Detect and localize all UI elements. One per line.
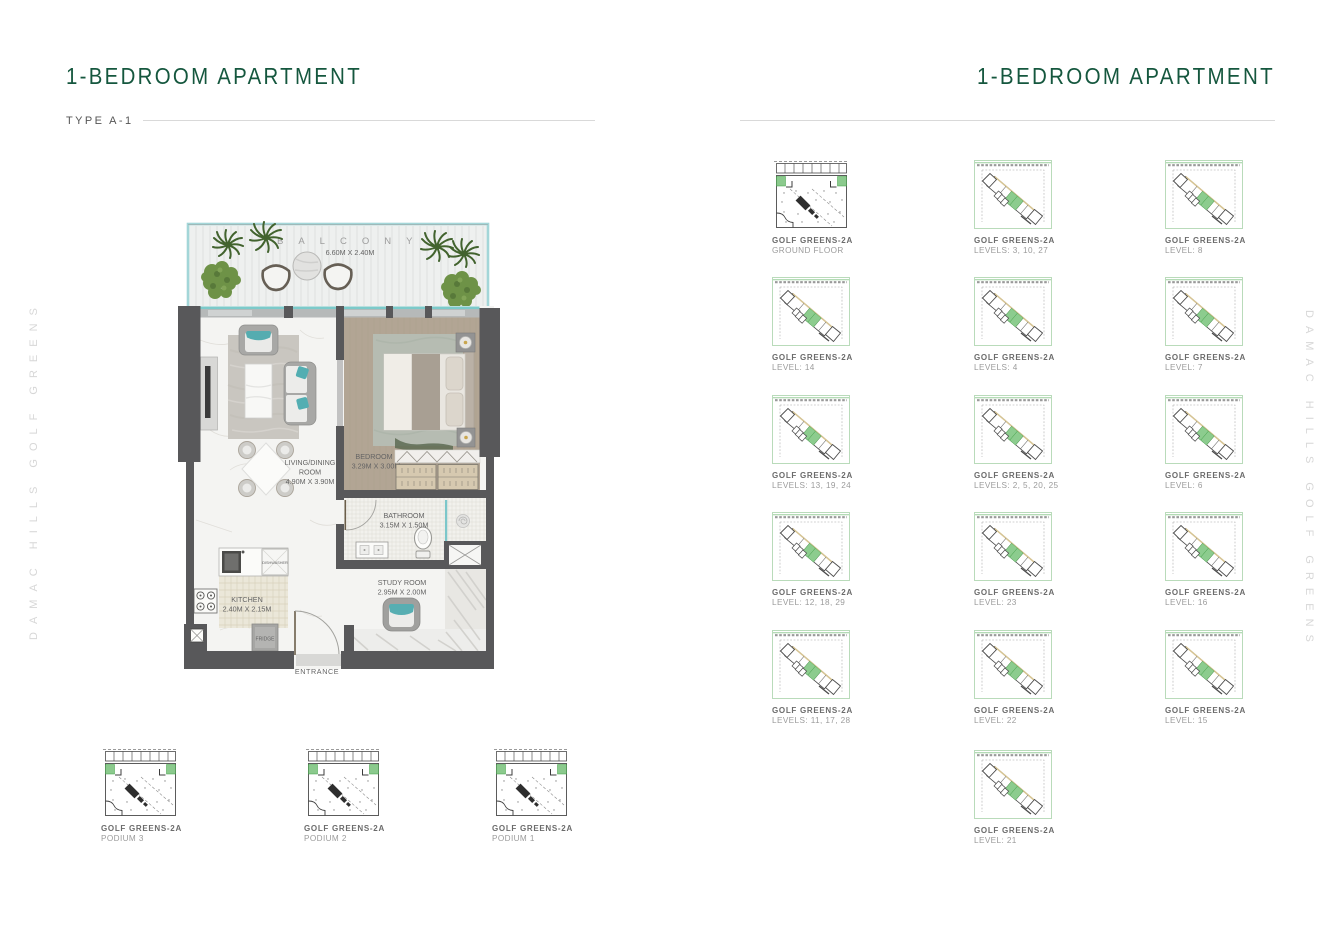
- svg-text:4.90M X 3.90M: 4.90M X 3.90M: [286, 477, 335, 486]
- svg-text:ENTRANCE: ENTRANCE: [295, 667, 339, 676]
- svg-text:GOLF GREENS-2A: GOLF GREENS-2A: [772, 471, 853, 480]
- svg-text:TYPE A-1: TYPE A-1: [66, 115, 134, 127]
- svg-text:GOLF GREENS-2A: GOLF GREENS-2A: [492, 824, 573, 833]
- svg-text:GOLF GREENS-2A: GOLF GREENS-2A: [772, 706, 853, 715]
- svg-text:GOLF GREENS-2A: GOLF GREENS-2A: [974, 236, 1055, 245]
- svg-text:GOLF GREENS-2A: GOLF GREENS-2A: [974, 588, 1055, 597]
- svg-text:PODIUM 3: PODIUM 3: [101, 834, 144, 843]
- svg-text:GOLF GREENS-2A: GOLF GREENS-2A: [974, 706, 1055, 715]
- svg-text:KITCHEN: KITCHEN: [231, 595, 263, 604]
- svg-text:DAMAC HILLS GOLF GREENS: DAMAC HILLS GOLF GREENS: [28, 300, 40, 640]
- svg-text:GOLF GREENS-2A: GOLF GREENS-2A: [974, 826, 1055, 835]
- svg-text:LEVEL: 8: LEVEL: 8: [1165, 246, 1203, 255]
- svg-text:GOLF GREENS-2A: GOLF GREENS-2A: [772, 236, 853, 245]
- svg-text:PODIUM 1: PODIUM 1: [492, 834, 535, 843]
- svg-text:1-BEDROOM APARTMENT: 1-BEDROOM APARTMENT: [66, 63, 362, 89]
- svg-text:ROOM: ROOM: [299, 468, 321, 477]
- svg-text:BEDROOM: BEDROOM: [355, 452, 392, 461]
- svg-text:LEVEL: 12, 18, 29: LEVEL: 12, 18, 29: [772, 598, 845, 607]
- svg-text:2.40M X 2.15M: 2.40M X 2.15M: [223, 605, 272, 614]
- svg-text:STUDY ROOM: STUDY ROOM: [378, 578, 427, 587]
- svg-text:GOLF GREENS-2A: GOLF GREENS-2A: [1165, 236, 1246, 245]
- svg-text:2.95M X 2.00M: 2.95M X 2.00M: [378, 588, 427, 597]
- svg-text:LEVEL: 15: LEVEL: 15: [1165, 716, 1208, 725]
- svg-text:PODIUM 2: PODIUM 2: [304, 834, 347, 843]
- svg-text:LEVEL: 21: LEVEL: 21: [974, 836, 1017, 845]
- svg-text:GOLF GREENS-2A: GOLF GREENS-2A: [772, 588, 853, 597]
- svg-text:GOLF GREENS-2A: GOLF GREENS-2A: [974, 353, 1055, 362]
- svg-text:FRIDGE: FRIDGE: [256, 637, 276, 643]
- svg-text:LEVELS: 3, 10, 27: LEVELS: 3, 10, 27: [974, 246, 1048, 255]
- svg-text:LEVEL: 14: LEVEL: 14: [772, 363, 815, 372]
- svg-text:LEVELS: 11, 17, 28: LEVELS: 11, 17, 28: [772, 716, 851, 725]
- svg-text:LEVELS: 4: LEVELS: 4: [974, 363, 1018, 372]
- svg-text:GOLF GREENS-2A: GOLF GREENS-2A: [304, 824, 385, 833]
- svg-text:3.29M X 3.00M: 3.29M X 3.00M: [352, 462, 401, 471]
- svg-text:LEVELS: 13, 19, 24: LEVELS: 13, 19, 24: [772, 481, 851, 490]
- svg-text:LEVEL: 23: LEVEL: 23: [974, 598, 1017, 607]
- svg-text:GOLF GREENS-2A: GOLF GREENS-2A: [1165, 353, 1246, 362]
- svg-text:LEVELS: 2, 5, 20, 25: LEVELS: 2, 5, 20, 25: [974, 481, 1059, 490]
- svg-text:LEVEL: 22: LEVEL: 22: [974, 716, 1017, 725]
- svg-text:GOLF GREENS-2A: GOLF GREENS-2A: [1165, 588, 1246, 597]
- svg-text:DISHWASHER: DISHWASHER: [262, 561, 288, 565]
- svg-text:BATHROOM: BATHROOM: [384, 511, 425, 520]
- svg-text:BALCONY: BALCONY: [277, 236, 427, 247]
- svg-text:GOLF GREENS-2A: GOLF GREENS-2A: [101, 824, 182, 833]
- svg-text:LIVING/DINING: LIVING/DINING: [285, 458, 336, 467]
- svg-text:3.15M X 1.50M: 3.15M X 1.50M: [380, 521, 429, 530]
- svg-text:DAMAC HILLS GOLF GREENS: DAMAC HILLS GOLF GREENS: [1303, 310, 1315, 650]
- svg-text:1-BEDROOM APARTMENT: 1-BEDROOM APARTMENT: [977, 63, 1275, 89]
- svg-text:LEVEL: 7: LEVEL: 7: [1165, 363, 1203, 372]
- svg-text:LEVEL: 16: LEVEL: 16: [1165, 598, 1208, 607]
- svg-text:6.60M X 2.40M: 6.60M X 2.40M: [326, 248, 375, 257]
- svg-text:GOLF GREENS-2A: GOLF GREENS-2A: [974, 471, 1055, 480]
- svg-text:GROUND FLOOR: GROUND FLOOR: [772, 246, 844, 255]
- svg-text:GOLF GREENS-2A: GOLF GREENS-2A: [772, 353, 853, 362]
- svg-text:LEVEL: 6: LEVEL: 6: [1165, 481, 1203, 490]
- svg-text:GOLF GREENS-2A: GOLF GREENS-2A: [1165, 471, 1246, 480]
- svg-text:GOLF GREENS-2A: GOLF GREENS-2A: [1165, 706, 1246, 715]
